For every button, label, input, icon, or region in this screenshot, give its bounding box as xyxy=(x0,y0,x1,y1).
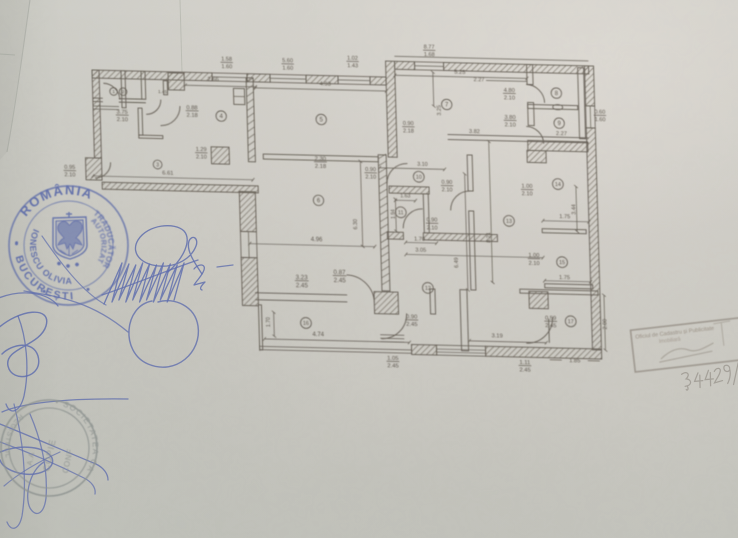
svg-text:2.10: 2.10 xyxy=(522,191,533,197)
svg-text:3.82: 3.82 xyxy=(469,129,480,135)
svg-text:1.60: 1.60 xyxy=(221,64,232,70)
svg-text:16: 16 xyxy=(303,321,309,327)
svg-text:15: 15 xyxy=(559,260,565,266)
svg-text:2.45: 2.45 xyxy=(406,322,417,328)
svg-text:1.63: 1.63 xyxy=(400,193,410,199)
svg-text:2.45: 2.45 xyxy=(519,368,530,374)
svg-text:0.87: 0.87 xyxy=(333,269,346,276)
svg-text:2.10: 2.10 xyxy=(504,95,515,101)
svg-text:4.93: 4.93 xyxy=(320,81,331,87)
svg-text:1.70: 1.70 xyxy=(266,317,272,327)
svg-text:1.75: 1.75 xyxy=(559,275,570,281)
svg-text:2.45: 2.45 xyxy=(387,363,398,369)
svg-text:3.44: 3.44 xyxy=(571,204,577,215)
svg-text:2.10: 2.10 xyxy=(442,188,453,194)
svg-text:1.85: 1.85 xyxy=(569,358,580,364)
svg-text:2.10: 2.10 xyxy=(365,175,376,181)
svg-text:3: 3 xyxy=(156,162,159,168)
svg-text:3.10: 3.10 xyxy=(417,162,428,168)
svg-text:14: 14 xyxy=(555,182,561,188)
svg-text:1.70: 1.70 xyxy=(414,237,425,243)
svg-text:6.61: 6.61 xyxy=(162,171,173,177)
svg-text:11: 11 xyxy=(398,210,404,216)
svg-text:2.18: 2.18 xyxy=(186,113,197,119)
svg-text:2.10: 2.10 xyxy=(427,225,438,231)
svg-text:4.74: 4.74 xyxy=(312,332,325,338)
svg-text:3.23: 3.23 xyxy=(296,274,309,281)
svg-text:2.45: 2.45 xyxy=(334,277,347,284)
svg-text:4.96: 4.96 xyxy=(311,237,324,243)
svg-text:2.27: 2.27 xyxy=(556,131,567,137)
svg-text:2.18: 2.18 xyxy=(403,129,414,135)
svg-text:2.00: 2.00 xyxy=(603,319,609,330)
svg-text:1.45: 1.45 xyxy=(158,89,168,94)
svg-text:2.10: 2.10 xyxy=(64,172,75,178)
svg-text:1.60: 1.60 xyxy=(595,117,606,123)
svg-text:1.75: 1.75 xyxy=(559,214,570,220)
svg-text:10: 10 xyxy=(416,175,422,181)
svg-text:2.27: 2.27 xyxy=(473,77,484,83)
svg-text:2.66: 2.66 xyxy=(207,77,218,83)
svg-text:2.10: 2.10 xyxy=(117,117,128,123)
svg-text:13: 13 xyxy=(506,219,512,225)
svg-text:6.30: 6.30 xyxy=(353,219,359,230)
svg-text:3.19: 3.19 xyxy=(491,333,502,339)
svg-text:1.60: 1.60 xyxy=(282,66,293,72)
svg-text:2.10: 2.10 xyxy=(505,122,516,128)
svg-text:1.43: 1.43 xyxy=(347,63,358,69)
svg-text:8.21: 8.21 xyxy=(486,232,492,243)
svg-text:2.10: 2.10 xyxy=(196,155,207,161)
svg-text:3.05: 3.05 xyxy=(415,248,426,254)
svg-text:2.45: 2.45 xyxy=(545,323,556,329)
svg-text:2.10: 2.10 xyxy=(529,261,540,267)
svg-text:1.68: 1.68 xyxy=(424,52,435,58)
svg-text:5.25: 5.25 xyxy=(454,70,465,76)
svg-text:12: 12 xyxy=(425,286,431,292)
svg-text:2.18: 2.18 xyxy=(315,164,326,170)
svg-text:17: 17 xyxy=(568,319,574,325)
svg-text:2.45: 2.45 xyxy=(296,282,309,289)
svg-text:6.49: 6.49 xyxy=(454,257,460,268)
